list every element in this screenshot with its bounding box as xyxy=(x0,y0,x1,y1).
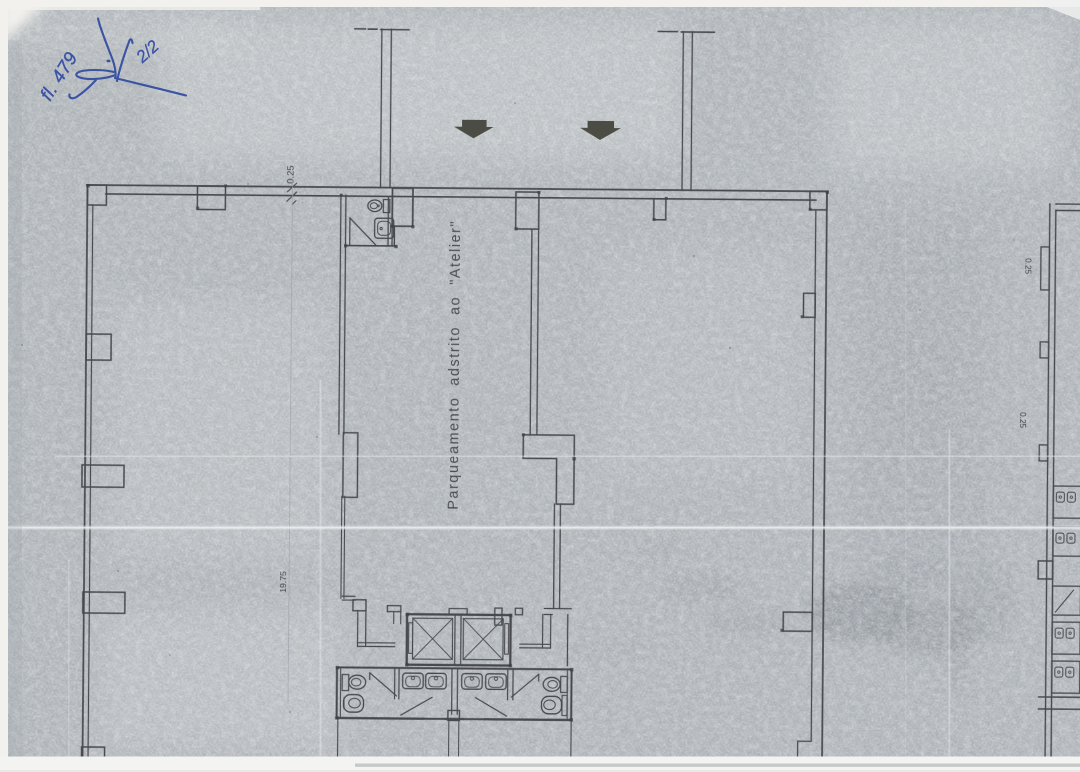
svg-text:0.25: 0.25 xyxy=(1023,258,1032,274)
svg-text:19.75: 19.75 xyxy=(278,571,288,593)
svg-text:0.25: 0.25 xyxy=(285,165,296,183)
svg-text:Parqueamento adstrito ao "A: Parqueamento adstrito ao "Atelier" xyxy=(446,220,465,510)
svg-text:0.25: 0.25 xyxy=(1018,412,1027,428)
